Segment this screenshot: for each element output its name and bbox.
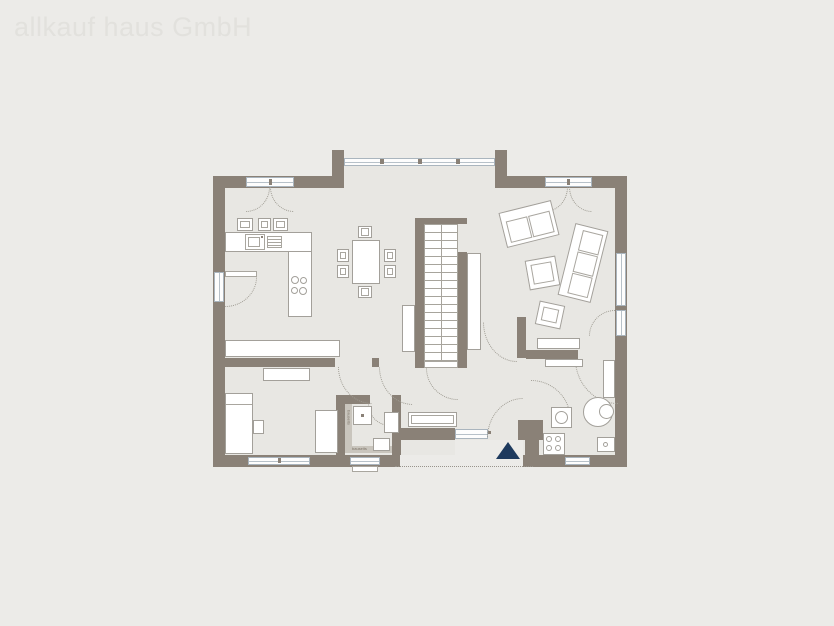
- utility-window: [565, 457, 590, 465]
- wall-hall-living: [517, 317, 526, 358]
- utility-stove-burner-1: [546, 436, 552, 442]
- bath-lining-label-vertical: bauseits: [346, 410, 351, 425]
- utility-stove-burner-3: [546, 445, 552, 451]
- kitchen-casement-arc-left: [246, 187, 270, 212]
- sofa-three-seat-cushion-3: [567, 273, 592, 298]
- bedroom-window-mullion: [278, 458, 281, 463]
- dining-chair-right-1-inner: [387, 252, 393, 259]
- utility-tall-cabinet: [603, 360, 615, 398]
- bay-mullion-3: [456, 159, 460, 164]
- kitchen-sideboard: [225, 340, 340, 357]
- utility-sink-drain: [603, 442, 608, 447]
- staircase-handrail: [441, 225, 442, 360]
- wall-hall-top-stub: [372, 358, 379, 367]
- wall-utility-left: [525, 440, 539, 456]
- dining-table: [352, 240, 380, 284]
- terrace-door: [616, 310, 626, 336]
- bay-mullion-2: [418, 159, 422, 164]
- bath-window: [350, 457, 380, 465]
- french-door-mullion: [567, 179, 570, 185]
- hall-door-arc: [379, 367, 413, 405]
- stove-burner-3: [291, 287, 298, 294]
- bedroom-desk: [263, 368, 310, 381]
- floor-bay: [344, 166, 495, 188]
- kitchen-window-mullion: [269, 179, 272, 185]
- staircase: [424, 224, 458, 361]
- sofa-two-seat-cushion-2: [528, 211, 555, 238]
- dining-chair-right-2-inner: [387, 268, 393, 275]
- kitchen-sink-basin: [248, 237, 260, 247]
- entrance-marker-triangle: [496, 442, 520, 459]
- wall-entry-recessed: [397, 428, 455, 440]
- utility-stove-burner-4: [555, 445, 561, 451]
- wall-stair-right: [458, 252, 467, 368]
- terrace-door-arc: [589, 310, 615, 336]
- stove-burner-1: [291, 276, 299, 284]
- kitchen-faucet: [261, 236, 263, 238]
- kitchen-wall-cabinet-3-inner: [276, 221, 285, 228]
- boiler-pipe: [599, 404, 614, 419]
- armchair-inner: [541, 306, 560, 323]
- toilet: [373, 438, 390, 451]
- side-door-arc: [225, 277, 257, 307]
- stair-sideboard: [467, 253, 481, 350]
- stove-burner-4: [299, 287, 307, 295]
- stair-door-arc: [426, 368, 458, 400]
- coffee-table-inner: [530, 261, 554, 284]
- kitchen-casement-arc-right: [270, 187, 294, 212]
- bed-pillow-line: [226, 404, 252, 405]
- tv-sideboard: [537, 338, 580, 349]
- wall-bedroom-top: [225, 358, 335, 367]
- side-door-left: [214, 272, 224, 302]
- kitchen-wall-cabinet-2-inner: [261, 221, 268, 228]
- wall-stair-left: [415, 218, 424, 368]
- utility-sideboard: [545, 359, 583, 367]
- wall-living-utility: [526, 350, 578, 359]
- bath-lining-label-horizontal: bauseits: [352, 447, 367, 452]
- armchair: [535, 301, 565, 330]
- washbasin: [384, 412, 399, 433]
- washing-machine-drum: [555, 411, 568, 424]
- coffee-table: [525, 256, 561, 291]
- kitchen-counter-side: [288, 251, 312, 317]
- bedroom-wardrobe: [315, 410, 338, 453]
- bed: [225, 393, 253, 454]
- front-door: [455, 429, 488, 439]
- bay-mullion-1: [380, 159, 384, 164]
- utility-stove-burner-2: [555, 436, 561, 442]
- bath-window-step: [352, 466, 378, 472]
- staircase-door: [424, 361, 458, 368]
- french-door-arc-right: [569, 187, 592, 212]
- porch-boundary-line: [395, 466, 533, 467]
- dining-chair-left-2-inner: [340, 268, 346, 275]
- wall-bay-stub-left: [332, 150, 344, 188]
- hall-bench: [408, 412, 457, 427]
- dining-shelf: [402, 305, 415, 352]
- bedroom-door-arc: [338, 367, 372, 404]
- living-window-right: [616, 253, 626, 306]
- hall-living-door-arc: [483, 322, 517, 362]
- hall-bench-inner: [411, 415, 454, 424]
- dining-chair-top-inner: [361, 228, 369, 236]
- wall-left: [213, 176, 225, 467]
- dining-chair-bottom-inner: [361, 288, 369, 296]
- shower-drain: [361, 414, 364, 417]
- dining-chair-left-1-inner: [340, 252, 346, 259]
- stove-burner-2: [300, 277, 307, 284]
- front-door-arc: [487, 398, 523, 438]
- kitchen-wall-cabinet-1-inner: [240, 221, 250, 228]
- nightstand: [253, 420, 264, 434]
- kitchen-drainer: [267, 236, 282, 248]
- watermark-logo: allkauf haus GmbH: [14, 12, 252, 43]
- floor-plan-canvas: allkauf haus GmbH: [0, 0, 834, 626]
